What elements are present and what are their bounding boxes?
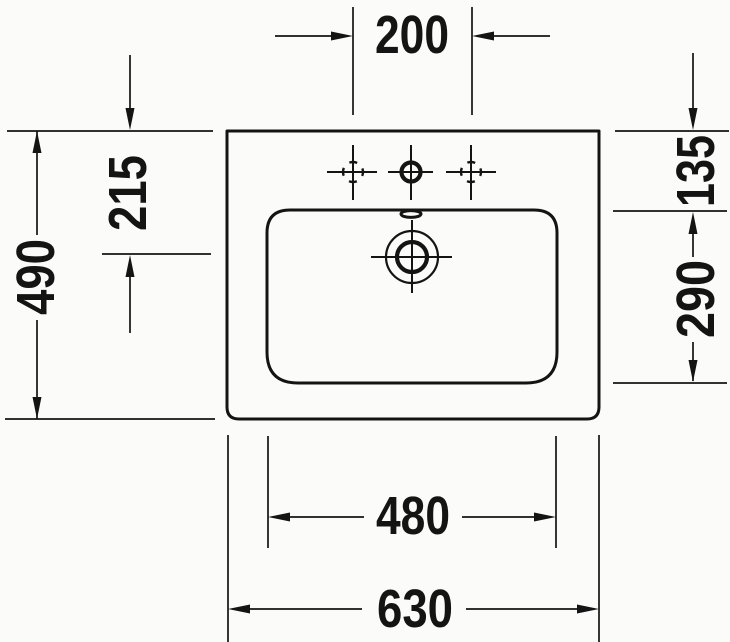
dim-290-label: 290 bbox=[666, 260, 726, 338]
arrowhead-down-icon bbox=[689, 108, 698, 130]
drain-icon bbox=[371, 220, 452, 293]
dim-480-label: 480 bbox=[376, 486, 450, 546]
overflow-slot-icon bbox=[401, 211, 421, 218]
arrowhead-down-icon bbox=[126, 108, 135, 130]
dim-200-label: 200 bbox=[375, 5, 449, 65]
dim-rim-to-basin: 135 bbox=[613, 53, 729, 211]
dim-215-label: 215 bbox=[98, 155, 158, 231]
dim-135-label: 135 bbox=[666, 135, 726, 207]
arrowhead-up-icon bbox=[689, 212, 698, 234]
arrowhead-down-icon bbox=[689, 360, 698, 382]
dim-basin-depth: 290 bbox=[613, 212, 727, 383]
dim-490-label: 490 bbox=[6, 239, 66, 315]
drawing-canvas: 200 490 215 135 290 bbox=[0, 0, 730, 642]
tap-hole-left-icon bbox=[327, 145, 377, 200]
arrowhead-down-icon bbox=[33, 397, 42, 419]
arrowhead-right-icon bbox=[577, 605, 599, 614]
arrowhead-up-icon bbox=[126, 255, 135, 277]
arrowhead-left-icon bbox=[268, 513, 290, 522]
dim-tap-spacing: 200 bbox=[275, 5, 550, 115]
tap-hole-right-icon bbox=[446, 145, 496, 200]
arrowhead-left-icon bbox=[228, 605, 250, 614]
dim-basin-width: 480 bbox=[268, 436, 556, 548]
arrowhead-right-icon bbox=[534, 513, 556, 522]
dim-drain-from-rear: 215 bbox=[98, 55, 211, 333]
washbasin-technical-drawing: 200 490 215 135 290 bbox=[0, 0, 730, 642]
arrowhead-right-icon bbox=[331, 32, 353, 41]
tap-hole-center-icon bbox=[388, 145, 433, 200]
arrowhead-up-icon bbox=[33, 131, 42, 153]
arrowhead-left-icon bbox=[472, 32, 494, 41]
dim-630-label: 630 bbox=[377, 579, 453, 639]
